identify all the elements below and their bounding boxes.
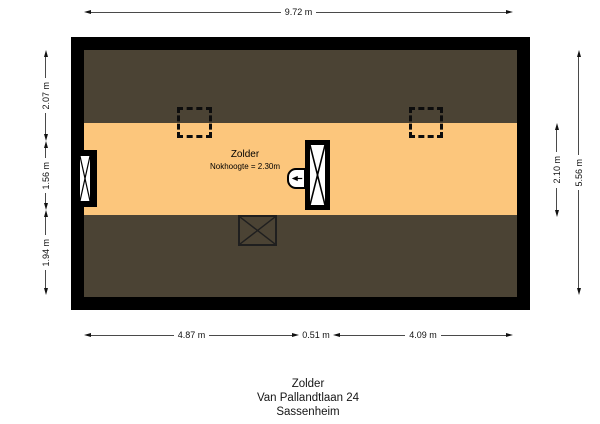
- dim-label-bottom-3: 4.09 m: [405, 330, 441, 340]
- dim-arrow-down-icon: [44, 203, 48, 210]
- dimension-segment: 5.56 m: [573, 50, 584, 295]
- dim-line: [316, 12, 506, 13]
- dim-arrow-left-icon: [333, 333, 340, 337]
- dim-line: [45, 270, 46, 288]
- dim-label-bottom-2: 0.51 m: [298, 330, 334, 340]
- dim-arrow-down-icon: [44, 288, 48, 295]
- dim-arrow-up-icon: [44, 210, 48, 217]
- dim-line: [45, 193, 46, 203]
- caption-address: Van Pallandtlaan 24: [16, 391, 600, 405]
- room-ridge-height-note: Nokhoogte = 2.30m: [170, 162, 320, 172]
- dim-label-right-outer: 5.56 m: [574, 155, 584, 191]
- dimension-segment: 2.10 m: [551, 123, 562, 217]
- dim-line: [45, 148, 46, 158]
- dim-label-left-3: 1.94 m: [41, 235, 51, 271]
- dimension-segment: 1.56 m: [40, 141, 51, 210]
- dim-arrow-left-icon: [84, 333, 91, 337]
- dimension-right-outer: 5.56 m: [573, 50, 584, 295]
- dim-line: [578, 190, 579, 288]
- room-label: Zolder Nokhoogte = 2.30m: [170, 149, 320, 172]
- caption-room: Zolder: [16, 377, 600, 391]
- dim-label-right-inner: 2.10 m: [552, 152, 562, 188]
- hatch-cross-icon: [240, 217, 275, 244]
- dimension-right-inner: 2.10 m: [551, 123, 562, 217]
- dim-arrow-right-icon: [506, 10, 513, 14]
- dim-label-left-2: 1.56 m: [41, 158, 51, 194]
- dim-label-left-1: 2.07 m: [41, 78, 51, 114]
- dim-line: [45, 57, 46, 78]
- dim-arrow-down-icon: [555, 210, 559, 217]
- dim-line: [441, 335, 506, 336]
- roof-window-outline-right: [409, 107, 443, 138]
- dim-arrow-up-icon: [44, 141, 48, 148]
- dim-label-total-width: 9.72 m: [281, 7, 317, 17]
- dimension-left: 2.07 m 1.56 m 1.94 m: [40, 50, 51, 295]
- dim-arrow-down-icon: [44, 134, 48, 141]
- caption: Zolder Van Pallandtlaan 24 Sassenheim: [16, 377, 600, 419]
- dim-line: [45, 217, 46, 235]
- dim-arrow-up-icon: [555, 123, 559, 130]
- dim-line: [578, 57, 579, 155]
- dim-arrow-right-icon: [506, 333, 513, 337]
- plan-interior: Zolder Nokhoogte = 2.30m: [84, 50, 517, 297]
- room-name: Zolder: [170, 149, 320, 161]
- caption-city: Sassenheim: [16, 405, 600, 419]
- dim-line: [45, 113, 46, 134]
- dimension-top: 9.72 m: [84, 6, 513, 18]
- dim-label-bottom-1: 4.87 m: [174, 330, 210, 340]
- dim-arrow-up-icon: [577, 50, 581, 57]
- dim-line: [91, 12, 281, 13]
- plan-outline-walls: Zolder Nokhoogte = 2.30m: [71, 37, 530, 310]
- dim-arrow-down-icon: [577, 288, 581, 295]
- dim-line: [556, 130, 557, 152]
- floorplan-canvas: 9.72 m 2.07 m 1.56 m 1.94 m: [0, 0, 600, 424]
- dim-line: [91, 335, 174, 336]
- dimension-segment: 4.09 m: [333, 329, 513, 341]
- dim-arrow-up-icon: [44, 50, 48, 57]
- dimension-segment: 4.87 m: [84, 329, 299, 341]
- dim-line: [340, 335, 405, 336]
- dim-arrow-left-icon: [84, 10, 91, 14]
- crossed-box-hatch: [238, 215, 277, 246]
- dimension-segment: 9.72 m: [84, 6, 513, 18]
- dim-line: [209, 335, 292, 336]
- dimension-bottom: 4.87 m 0.51 m 4.09 m: [84, 329, 513, 341]
- dimension-segment: 2.07 m: [40, 50, 51, 141]
- dim-line: [556, 188, 557, 210]
- dimension-segment: 1.94 m: [40, 210, 51, 295]
- window-cross-icon: [80, 156, 90, 201]
- roof-window-outline-left: [177, 107, 212, 138]
- dimension-segment: 0.51 m: [299, 329, 333, 341]
- left-wall-window: [71, 150, 97, 207]
- arrow-left-icon: [291, 174, 303, 183]
